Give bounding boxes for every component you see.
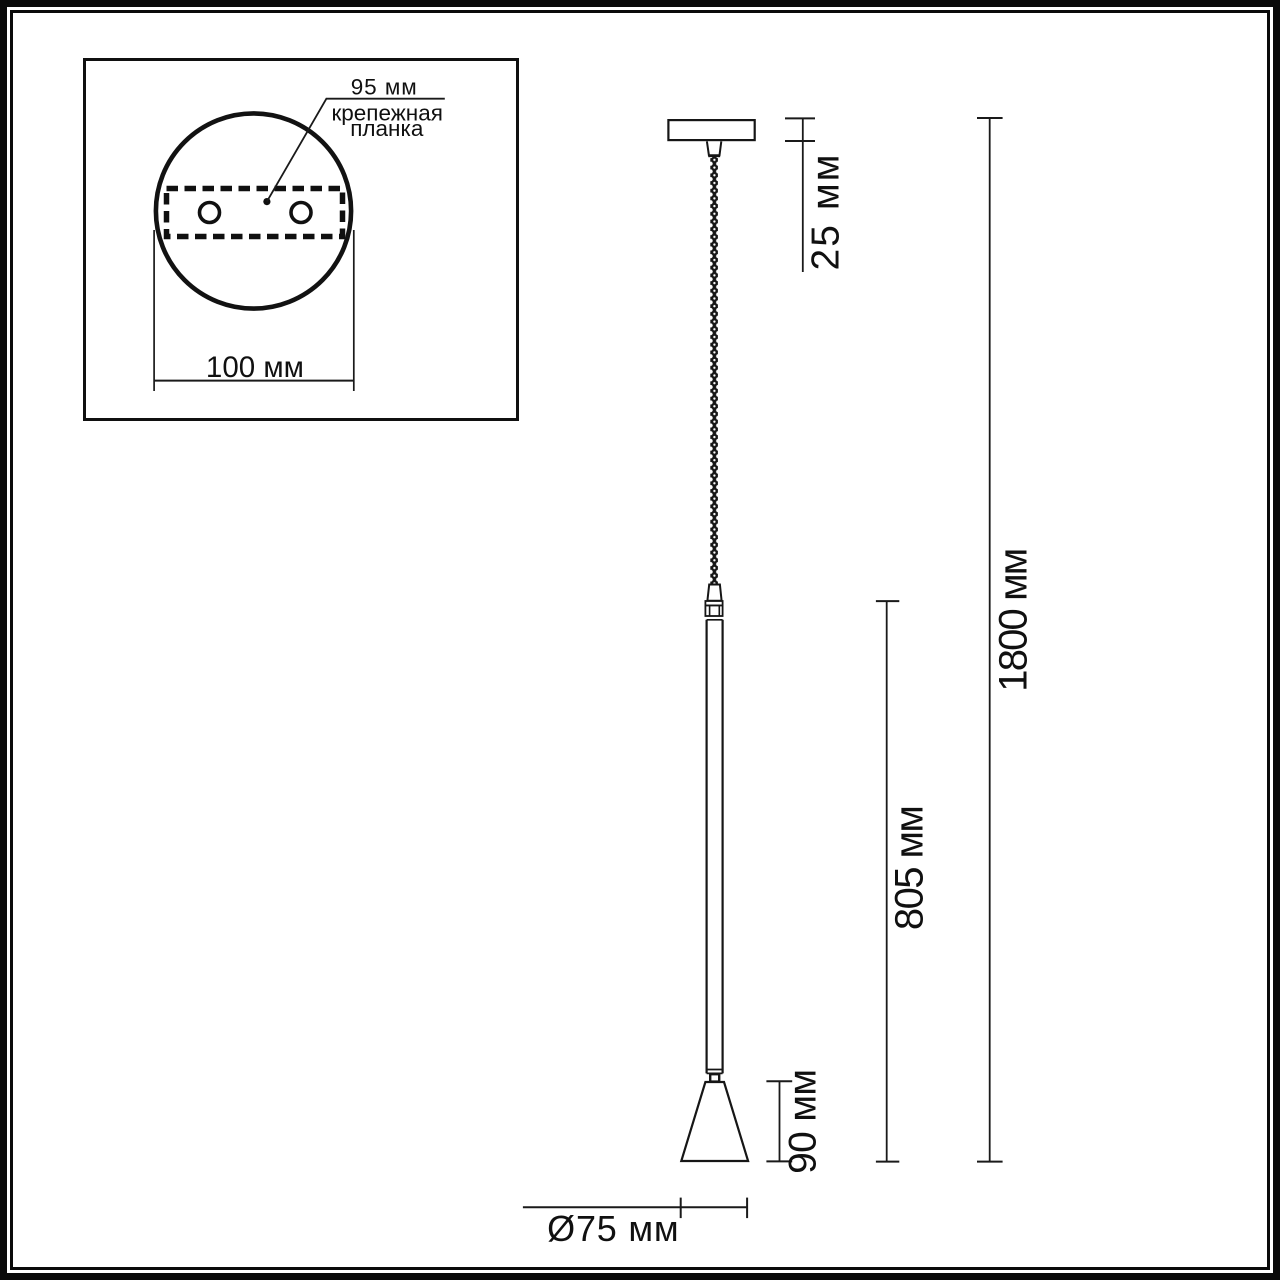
svg-text:95 мм: 95 мм <box>351 75 417 100</box>
svg-text:805 мм: 805 мм <box>887 805 931 930</box>
svg-text:Ø75 мм: Ø75 мм <box>547 1208 679 1249</box>
svg-text:1800 мм: 1800 мм <box>991 548 1035 692</box>
svg-text:25 мм: 25 мм <box>805 155 848 271</box>
svg-text:90 мм: 90 мм <box>781 1069 824 1174</box>
svg-text:100 мм: 100 мм <box>206 351 304 384</box>
